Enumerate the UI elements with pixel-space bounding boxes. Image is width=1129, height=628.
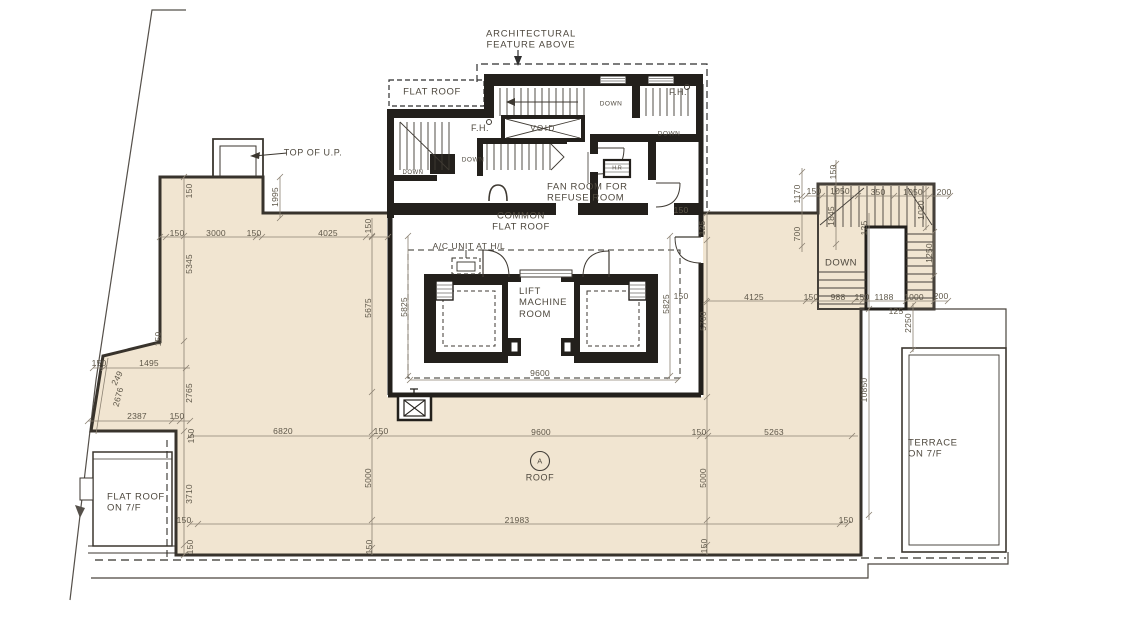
dimension-label: 1050 xyxy=(830,186,850,196)
dimension-label: 10850 xyxy=(859,378,869,403)
dimension-label: 150 xyxy=(839,515,854,525)
dimension-label: 150 xyxy=(185,540,195,555)
dimension-label: 2250 xyxy=(903,313,913,333)
dimension-label: 1495 xyxy=(139,358,159,368)
label-ac-unit: A/C UNIT AT H/L xyxy=(433,241,506,251)
dimension-label: 5675 xyxy=(363,298,373,318)
dimension-label: 200 xyxy=(934,291,949,301)
dimension-label: 150 xyxy=(170,411,185,421)
dimension-label: 4125 xyxy=(744,292,764,302)
dimension-label: 1170 xyxy=(792,184,802,203)
label-flat-roof-7f: FLAT ROOFON 7/F xyxy=(107,492,165,515)
top-of-up-box xyxy=(213,139,287,177)
label-common-flat-roof: COMMONFLAT ROOF xyxy=(492,211,550,234)
label-roof: ROOF xyxy=(526,473,554,484)
label-lift-machine-room: LIFTMACHINEROOM xyxy=(519,286,567,320)
dimension-label: 700 xyxy=(792,227,802,242)
dimension-label: 150 xyxy=(674,205,689,215)
dimension-label: 150 xyxy=(364,540,374,555)
dimension-label: 150 xyxy=(699,539,709,554)
dimension-label: 4025 xyxy=(318,228,338,238)
dimension-label: 350 xyxy=(871,187,886,197)
dimension-label: 5000 xyxy=(363,468,373,488)
dimension-label: 150 xyxy=(855,292,870,302)
dimension-label: 150 xyxy=(186,429,196,444)
fire-hydrant-label: F.H. xyxy=(471,123,489,133)
dimension-label: 1050 xyxy=(903,187,923,197)
dimension-label: 9600 xyxy=(531,427,551,437)
dimension-label: 1188 xyxy=(874,292,893,302)
down-label: DOWN xyxy=(462,157,485,164)
dimension-label: 1020 xyxy=(916,200,926,220)
dimension-label: 125 xyxy=(859,221,869,236)
dimension-label: 5700 xyxy=(698,311,708,331)
dimension-label: 150 xyxy=(184,184,194,199)
dimension-label: 5825 xyxy=(661,294,671,314)
dimension-label: 150 xyxy=(804,292,819,302)
dimension-label: 150 xyxy=(92,358,107,368)
label-void: VOID xyxy=(530,124,556,134)
label-hose-reel: H.R xyxy=(612,166,621,173)
dimension-label: 1000 xyxy=(904,292,924,302)
dimension-label: 3710 xyxy=(184,484,194,504)
dimension-label: 1250 xyxy=(924,243,934,263)
label-flat-roof-top: FLAT ROOF xyxy=(403,86,461,97)
label-terrace: TERRACEON 7/F xyxy=(908,438,958,461)
floor-plan-page: ARCHITECTURALFEATURE ABOVE FLAT ROOF TOP… xyxy=(0,0,1129,628)
label-fan-room: FAN ROOM FORREFUSE ROOM xyxy=(547,182,628,205)
dimension-label: 125 xyxy=(697,221,707,236)
dimension-label: 3000 xyxy=(206,228,226,238)
dimension-label: 150 xyxy=(247,228,262,238)
label-architectural-feature: ARCHITECTURALFEATURE ABOVE xyxy=(486,29,576,52)
dimension-label: 2387 xyxy=(127,411,147,421)
dimension-label: 150 xyxy=(170,228,185,238)
dimension-label: 5000 xyxy=(698,468,708,488)
dimension-label: 150 xyxy=(807,186,822,196)
dimension-label: 150 xyxy=(828,165,838,180)
dimension-label: 2765 xyxy=(184,383,194,403)
dimension-label: 150 xyxy=(153,332,163,347)
down-label: DOWN xyxy=(825,258,857,269)
dimension-label: 150 xyxy=(374,426,389,436)
label-top-of-up: TOP OF U.P. xyxy=(284,148,343,159)
dimension-label: 5263 xyxy=(764,427,784,437)
dimension-label: 1995 xyxy=(270,187,280,207)
roof-marker: A xyxy=(537,457,543,466)
dimension-label: 150 xyxy=(363,219,373,234)
down-label: DOWN xyxy=(658,131,681,138)
dimension-label: 5345 xyxy=(184,254,194,274)
dimension-label: 21983 xyxy=(505,515,530,525)
dimension-label: 6820 xyxy=(273,426,293,436)
down-label: DOWN xyxy=(403,170,424,176)
dimension-label: 1845 xyxy=(826,206,836,226)
dimension-label: 150 xyxy=(674,291,689,301)
down-label: DOWN xyxy=(600,101,623,108)
dimension-label: 988 xyxy=(831,292,846,302)
dimension-label: 150 xyxy=(177,515,192,525)
dimension-label: 150 xyxy=(692,427,707,437)
dimension-label: 125 xyxy=(889,306,904,316)
bottom-dashed-boundary xyxy=(95,558,1006,560)
fire-hydrant-label: F.H. xyxy=(669,87,687,97)
dimension-label: 200 xyxy=(937,187,952,197)
dimension-label: 9600 xyxy=(530,368,550,378)
dimension-label: 5825 xyxy=(399,297,409,317)
